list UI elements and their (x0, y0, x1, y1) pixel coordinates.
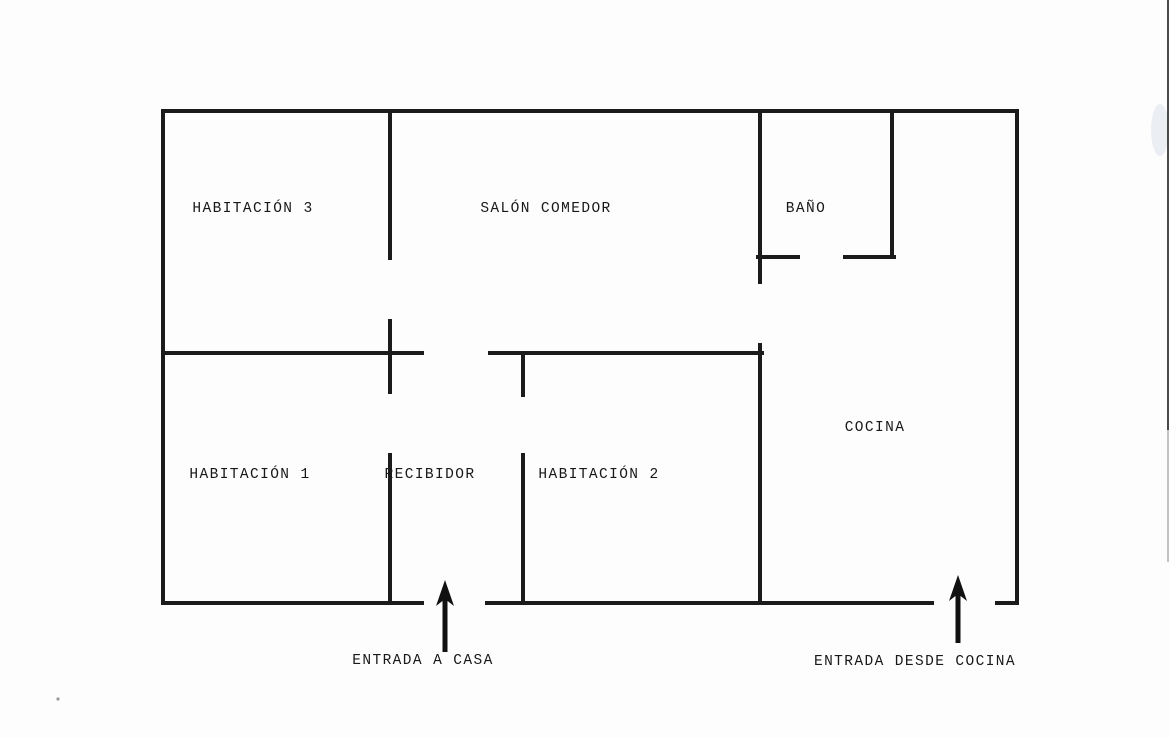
room-label-salon-comedor: SALÓN COMEDOR (480, 199, 611, 217)
scan-dot (56, 697, 59, 700)
scan-smudge (1151, 104, 1169, 156)
room-label-cocina: COCINA (845, 420, 906, 436)
room-label-habitacion-3: HABITACIÓN 3 (192, 199, 313, 217)
room-label-recibidor: RECIBIDOR (385, 467, 476, 483)
entrance-label-entrada-desde-cocina: ENTRADA DESDE COCINA (814, 654, 1016, 670)
room-labels-layer: HABITACIÓN 3SALÓN COMEDORBAÑOCOCINAHABIT… (189, 199, 905, 483)
scanned-floor-plan-page: HABITACIÓN 3SALÓN COMEDORBAÑOCOCINAHABIT… (0, 0, 1170, 738)
scan-artifacts (56, 0, 1169, 701)
room-label-habitacion-1: HABITACIÓN 1 (189, 465, 310, 483)
walls-layer (163, 111, 1017, 603)
floorplan-svg: HABITACIÓN 3SALÓN COMEDORBAÑOCOCINAHABIT… (0, 0, 1170, 738)
entrance-entrada-a-casa: ENTRADA A CASA (352, 580, 493, 669)
room-label-habitacion-2: HABITACIÓN 2 (538, 465, 659, 483)
room-label-bano: BAÑO (786, 200, 826, 217)
entrance-label-entrada-a-casa: ENTRADA A CASA (352, 653, 493, 669)
entrance-entrada-desde-cocina: ENTRADA DESDE COCINA (814, 575, 1016, 670)
entrances-layer: ENTRADA A CASAENTRADA DESDE COCINA (352, 575, 1016, 670)
